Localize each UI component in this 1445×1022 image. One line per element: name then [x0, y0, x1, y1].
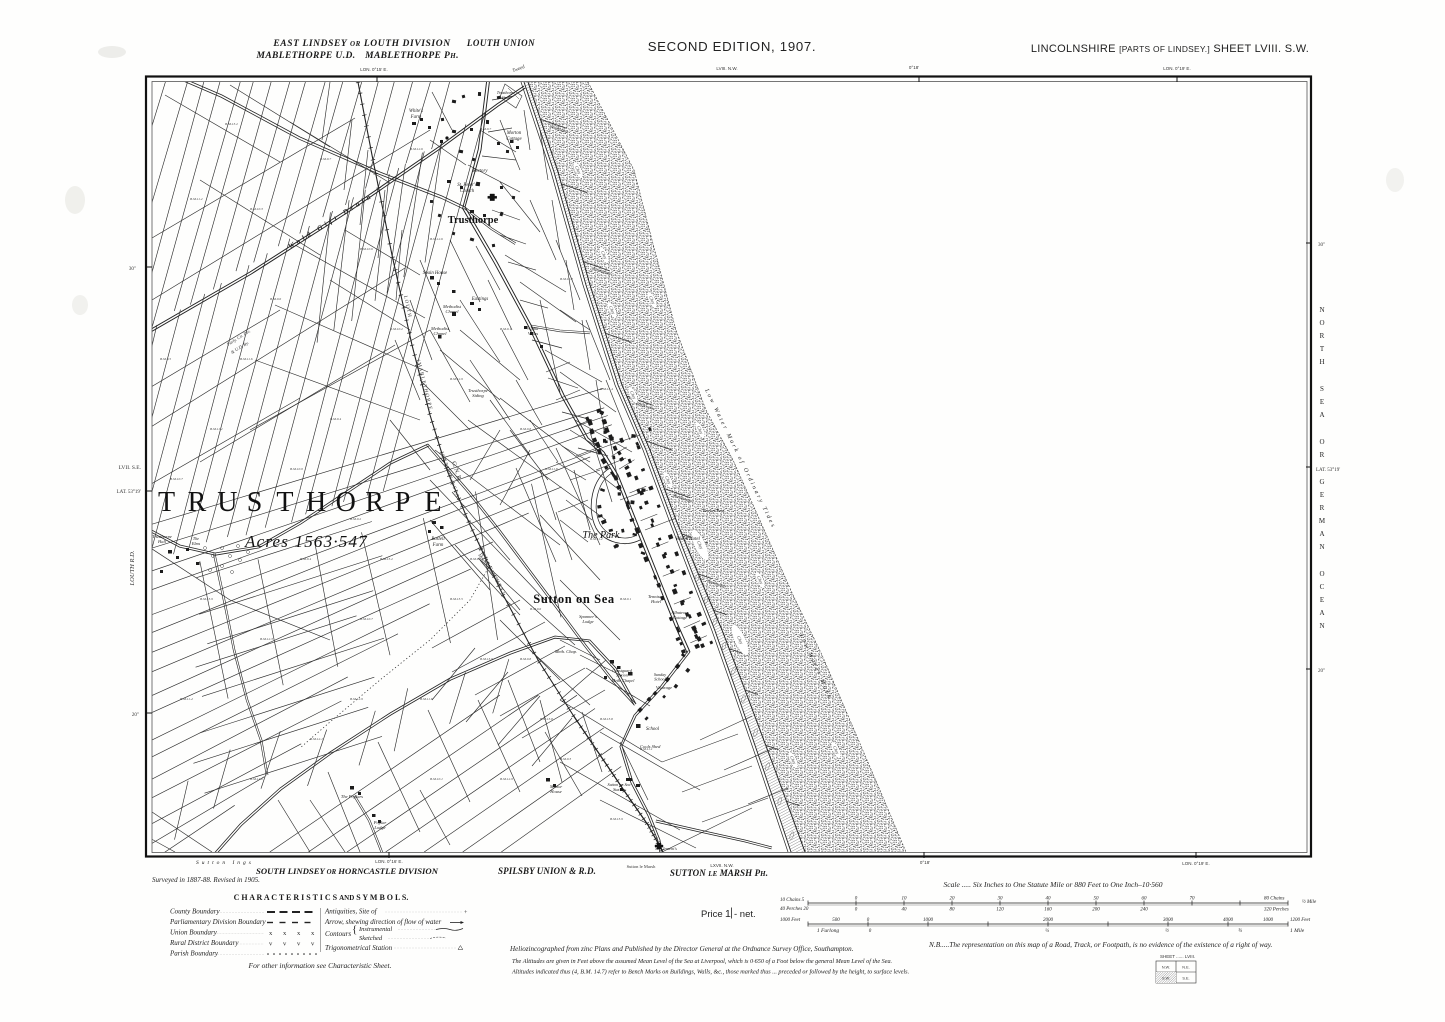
svg-text:B.M.9.7: B.M.9.7: [480, 127, 491, 131]
svg-text:B.M.13.8: B.M.13.8: [600, 717, 613, 721]
svg-text:240: 240: [1140, 908, 1148, 913]
svg-text:B.M.13.2: B.M.13.2: [225, 122, 238, 126]
svg-text:T: T: [1320, 345, 1325, 353]
svg-text:Heliozincographed from zinc: Heliozincographed from zinc Plans and Pu…: [509, 945, 854, 953]
svg-text:Sketched: Sketched: [359, 935, 383, 942]
svg-text:A: A: [1319, 411, 1324, 419]
svg-text:3000: 3000: [1163, 918, 1174, 923]
svg-text:Price: Price: [701, 909, 723, 920]
svg-text:Station: Station: [613, 787, 625, 792]
svg-text:LINCOLNSHIRE [PARTS OF LINDSEY: LINCOLNSHIRE [PARTS OF LINDSEY.] SHEET L…: [1031, 43, 1309, 55]
svg-text:20″: 20″: [1318, 669, 1325, 674]
svg-text:Vicarage: Vicarage: [656, 685, 672, 690]
svg-text:Hall: Hall: [157, 539, 167, 544]
svg-text:70: 70: [1190, 897, 1196, 902]
svg-text:B.M.12.3: B.M.12.3: [560, 277, 573, 281]
svg-text:O: O: [1319, 319, 1324, 327]
svg-text:0°18′: 0°18′: [920, 860, 930, 865]
svg-text:C H A R A C T E R I S T I C S: C H A R A C T E R I S T I C S AND S Y M …: [234, 893, 409, 902]
svg-text:S: S: [247, 487, 263, 518]
svg-text:Eastings: Eastings: [471, 297, 489, 302]
svg-text:Station: Station: [616, 673, 628, 678]
svg-text:Rectory: Rectory: [472, 169, 489, 174]
svg-text:Scale ..... Six Inches to One: Scale ..... Six Inches to One Statute Mi…: [944, 880, 1163, 889]
svg-text:SUTTON LE MARSH PH.: SUTTON LE MARSH PH.: [670, 868, 768, 878]
svg-text:B.M.12.3: B.M.12.3: [260, 637, 273, 641]
svg-text:B.M.9.3: B.M.9.3: [560, 757, 571, 761]
svg-text:320 Perches: 320 Perches: [1264, 908, 1289, 913]
svg-text:Sutton le Marsh: Sutton le Marsh: [627, 864, 656, 869]
svg-text:R: R: [1320, 332, 1325, 340]
svg-text:R: R: [188, 487, 207, 518]
svg-text:Bostell: Bostell: [431, 537, 445, 542]
svg-text:White's: White's: [409, 109, 423, 114]
svg-text:B.M.13.5: B.M.13.5: [450, 597, 463, 601]
svg-text:B.M.10.4: B.M.10.4: [470, 557, 483, 561]
svg-text:LON. 0°15′ E.: LON. 0°15′ E.: [360, 67, 387, 72]
svg-text:Trigonometrical Station: Trigonometrical Station: [325, 944, 393, 952]
svg-text:Hotel: Hotel: [650, 599, 662, 604]
svg-text:N.W.: N.W.: [1162, 966, 1170, 970]
svg-text:MABLETHORPE U.D.: MABLETHORPE U.D.: [255, 51, 355, 61]
svg-text:B.M.10.6: B.M.10.6: [360, 247, 373, 251]
svg-text:Gout: Gout: [502, 95, 511, 100]
svg-text:SECOND EDITION, 1907.: SECOND EDITION, 1907.: [648, 39, 817, 54]
svg-text:500: 500: [832, 918, 840, 923]
svg-text:40: 40: [902, 908, 908, 913]
svg-text:50: 50: [1094, 897, 1100, 902]
svg-text:½ Mile: ½ Mile: [1302, 900, 1317, 905]
svg-text:Church: Church: [460, 189, 475, 194]
svg-text:House: House: [549, 789, 562, 794]
svg-text:B.M.11.1: B.M.11.1: [640, 747, 653, 751]
svg-text:Arrow, shewing direction of fl: Arrow, shewing direction of flow of wate…: [324, 918, 441, 926]
svg-text:B.M.13.8: B.M.13.8: [540, 717, 553, 721]
svg-text:C: C: [1320, 583, 1325, 591]
svg-text:Cottage: Cottage: [506, 137, 522, 142]
svg-text:MABLETHORPE PH.: MABLETHORPE PH.: [364, 51, 459, 61]
svg-text:P: P: [395, 487, 411, 518]
svg-text:B.M.13.2: B.M.13.2: [380, 557, 393, 561]
svg-text:S.W.: S.W.: [1162, 977, 1170, 981]
svg-text:LOUTH UNION: LOUTH UNION: [466, 38, 535, 48]
svg-text:R: R: [1320, 451, 1325, 459]
svg-text:B.M.9.2: B.M.9.2: [350, 517, 361, 521]
svg-text:- net.: - net.: [734, 909, 756, 920]
svg-text:M: M: [1319, 517, 1326, 525]
svg-text:A: A: [1319, 530, 1324, 538]
svg-text:N.B.....The representation on: N.B.....The representation on this map o…: [928, 940, 1273, 949]
svg-text:B.M.11.2: B.M.11.2: [590, 537, 603, 541]
svg-text:1 Mile: 1 Mile: [1290, 928, 1305, 934]
svg-text:Lodge: Lodge: [581, 619, 593, 624]
svg-text:80: 80: [950, 908, 956, 913]
svg-text:B.M.9.1: B.M.9.1: [620, 597, 631, 601]
svg-text:20″: 20″: [132, 713, 139, 718]
svg-text:Villas: Villas: [528, 331, 538, 336]
svg-text:B.M.13.9: B.M.13.9: [200, 597, 213, 601]
svg-text:St. Clement's: St. Clement's: [655, 846, 677, 851]
svg-text:1000 Feet: 1000 Feet: [780, 918, 801, 923]
svg-text:S.E.: S.E.: [1182, 977, 1189, 981]
svg-text:B.M.13.9: B.M.13.9: [480, 657, 493, 661]
svg-text:EAST LINDSEY OR LOUTH DIVISION: EAST LINDSEY OR LOUTH DIVISION: [272, 39, 451, 49]
svg-text:20: 20: [950, 897, 956, 902]
svg-text:B.M.11.8: B.M.11.8: [545, 467, 558, 471]
svg-text:40 Perches 20: 40 Perches 20: [780, 907, 809, 912]
svg-text:E: E: [424, 487, 441, 518]
svg-text:H: H: [1319, 358, 1324, 366]
svg-text:1000: 1000: [923, 918, 934, 923]
svg-text:160: 160: [1044, 908, 1052, 913]
svg-text:Meth. Chap.: Meth. Chap.: [554, 649, 577, 654]
svg-text:B.M.10.0: B.M.10.0: [290, 467, 303, 471]
svg-text:B.M.12.9: B.M.12.9: [350, 697, 363, 701]
svg-text:B.M.11.6: B.M.11.6: [240, 357, 253, 361]
svg-text:B.M.13.4: B.M.13.4: [600, 387, 613, 391]
svg-text:¾: ¾: [1238, 929, 1242, 934]
svg-text:B.M.9.7: B.M.9.7: [320, 157, 331, 161]
svg-text:B.M.9.5: B.M.9.5: [160, 357, 171, 361]
svg-text:For other information see Char: For other information see Characteristic…: [248, 961, 392, 970]
svg-text:S: S: [1320, 385, 1324, 393]
svg-text:Contours: Contours: [325, 930, 351, 938]
svg-text:1 Furlong: 1 Furlong: [817, 928, 839, 934]
svg-text:B.M.9.4: B.M.9.4: [300, 557, 311, 561]
svg-text:B.M.10.3: B.M.10.3: [250, 207, 263, 211]
svg-text:30″: 30″: [1318, 243, 1325, 248]
svg-text:Beach Hotel: Beach Hotel: [676, 537, 701, 542]
svg-text:T: T: [276, 487, 293, 518]
svg-text:Antiquities, Site of: Antiquities, Site of: [324, 908, 378, 916]
svg-text:Morton: Morton: [506, 131, 522, 136]
svg-text:County Boundary: County Boundary: [170, 908, 220, 916]
svg-text:B.M.10.2: B.M.10.2: [390, 327, 403, 331]
svg-text:10 Chains 5: 10 Chains 5: [780, 898, 805, 903]
svg-text:Spain House: Spain House: [423, 271, 448, 276]
svg-text:30″: 30″: [129, 267, 136, 272]
svg-text:B.M.12.6: B.M.12.6: [430, 237, 443, 241]
svg-text:60: 60: [1142, 897, 1148, 902]
svg-text:B.M.11.2: B.M.11.2: [210, 427, 223, 431]
svg-text:B.M.13.9: B.M.13.9: [610, 817, 623, 821]
svg-text:N: N: [1319, 622, 1324, 630]
svg-text:Parliamentary Division Boundar: Parliamentary Division Boundary: [169, 918, 267, 926]
svg-text:B.M.9.6: B.M.9.6: [270, 297, 281, 301]
svg-text:B.M.11.2: B.M.11.2: [190, 197, 203, 201]
svg-text:St. Peter's: St. Peter's: [457, 183, 477, 188]
svg-text:2000: 2000: [1043, 918, 1054, 923]
svg-text:The Poplars: The Poplars: [341, 794, 363, 799]
svg-text:LAT. 53°19′: LAT. 53°19′: [1316, 468, 1340, 473]
svg-text:LOUTH R.D.: LOUTH R.D.: [129, 550, 136, 586]
svg-text:B.M.9.4: B.M.9.4: [330, 417, 341, 421]
svg-text:1000: 1000: [1263, 918, 1274, 923]
svg-text:Acres 1563·547: Acres 1563·547: [244, 532, 368, 551]
svg-text:120: 120: [996, 908, 1004, 913]
svg-text:SOUTH LINDSEY OR HORNCASTLE DI: SOUTH LINDSEY OR HORNCASTLE DIVISION: [256, 866, 439, 876]
svg-text:H: H: [306, 487, 326, 518]
svg-text:30: 30: [998, 897, 1004, 902]
svg-text:N.E.: N.E.: [1182, 966, 1189, 970]
svg-text:O: O: [1319, 570, 1324, 578]
svg-text:B.M.10.7: B.M.10.7: [360, 617, 373, 621]
svg-text:E: E: [1320, 491, 1324, 499]
svg-text:B.M.12.1: B.M.12.1: [310, 737, 323, 741]
svg-text:Altitudes indicated thus (4, B: Altitudes indicated thus (4, B.M. 14.7) …: [511, 969, 909, 976]
svg-text:A: A: [1319, 609, 1324, 617]
svg-text:LVII. S.E.: LVII. S.E.: [119, 465, 142, 471]
svg-text:U: U: [217, 487, 237, 518]
svg-text:R: R: [365, 487, 384, 518]
svg-text:¼: ¼: [1045, 929, 1049, 934]
svg-text:N: N: [1319, 543, 1324, 551]
svg-text:B.M.9.8: B.M.9.8: [520, 657, 531, 661]
svg-text:School: School: [646, 727, 660, 732]
svg-text:Surveyed in 1887-88. Revised: Surveyed in 1887-88. Revised in 1905.: [152, 876, 260, 884]
svg-text:Siding: Siding: [472, 393, 484, 398]
svg-text:Instrumental: Instrumental: [358, 926, 392, 933]
svg-text:T: T: [158, 487, 175, 518]
svg-text:B.M.11.4: B.M.11.4: [180, 697, 193, 701]
svg-text:B.M.12.9: B.M.12.9: [500, 777, 513, 781]
svg-text:LON. 0°16′ E.: LON. 0°16′ E.: [375, 859, 402, 864]
svg-text:B.M.9.6: B.M.9.6: [530, 607, 541, 611]
svg-text:LON. 0°19′ E.: LON. 0°19′ E.: [1182, 861, 1209, 866]
svg-text:Lodge: Lodge: [373, 825, 385, 830]
svg-text:Sutton Ings: Sutton Ings: [196, 860, 254, 866]
svg-text:LVIII. N.W.: LVIII. N.W.: [716, 66, 737, 71]
svg-text:Elms: Elms: [191, 541, 201, 546]
svg-text:Farm: Farm: [432, 543, 444, 548]
svg-text:Rural District Boundary: Rural District Boundary: [169, 939, 239, 947]
svg-text:{: {: [352, 924, 357, 936]
svg-text:B.M.11.0: B.M.11.0: [250, 777, 263, 781]
svg-text:O: O: [1319, 438, 1324, 446]
svg-text:Rocket Post: Rocket Post: [702, 508, 725, 513]
svg-text:B.M.10.1: B.M.10.1: [430, 777, 443, 781]
svg-text:Chapel: Chapel: [446, 309, 460, 314]
svg-text:4000: 4000: [1223, 918, 1234, 923]
svg-text:B.M.12.9: B.M.12.9: [450, 377, 463, 381]
svg-text:Trusthorpe: Trusthorpe: [448, 215, 499, 226]
svg-text:0°18′: 0°18′: [909, 65, 919, 70]
svg-text:G: G: [1319, 478, 1324, 486]
svg-text:10: 10: [902, 897, 908, 902]
svg-text:Parish Boundary: Parish Boundary: [169, 950, 219, 958]
svg-text:Meth. Chapel: Meth. Chapel: [611, 678, 636, 683]
svg-text:Cottage: Cottage: [673, 615, 687, 620]
svg-text:1: 1: [725, 908, 731, 920]
svg-text:B.M.9.1: B.M.9.1: [500, 327, 511, 331]
svg-text:Chapel: Chapel: [434, 331, 448, 336]
svg-text:Union Boundary: Union Boundary: [170, 929, 218, 937]
svg-text:40: 40: [1046, 897, 1052, 902]
svg-text:LAT. 53°19′: LAT. 53°19′: [117, 490, 141, 495]
svg-text:O: O: [336, 487, 356, 518]
svg-text:½: ½: [1165, 929, 1169, 934]
svg-text:SHEET ...... LVIII.: SHEET ...... LVIII.: [1160, 954, 1195, 959]
svg-text:SPILSBY UNION & R.D.: SPILSBY UNION & R.D.: [498, 866, 596, 876]
svg-text:Sutton on Sea: Sutton on Sea: [533, 592, 615, 606]
svg-text:B.M.10.7: B.M.10.7: [170, 477, 183, 481]
svg-text:80 Chains: 80 Chains: [1264, 897, 1284, 902]
svg-text:R: R: [1320, 504, 1325, 512]
svg-text:B.M.11.6: B.M.11.6: [420, 697, 433, 701]
svg-text:B.M.9.8: B.M.9.8: [520, 427, 531, 431]
svg-text:School: School: [654, 677, 666, 682]
svg-text:E: E: [1320, 596, 1324, 604]
svg-text:N: N: [1319, 306, 1324, 314]
svg-text:LON. 0°19′ E.: LON. 0°19′ E.: [1163, 66, 1190, 71]
svg-text:B.M.12.6: B.M.12.6: [410, 147, 423, 151]
svg-text:Farm: Farm: [410, 115, 422, 120]
svg-text:200: 200: [1092, 908, 1100, 913]
svg-text:1200 Feet: 1200 Feet: [1290, 918, 1311, 923]
svg-text:The Altitudes are given in Fee: The Altitudes are given in Feet above th…: [512, 958, 892, 965]
svg-text:E: E: [1320, 398, 1324, 406]
